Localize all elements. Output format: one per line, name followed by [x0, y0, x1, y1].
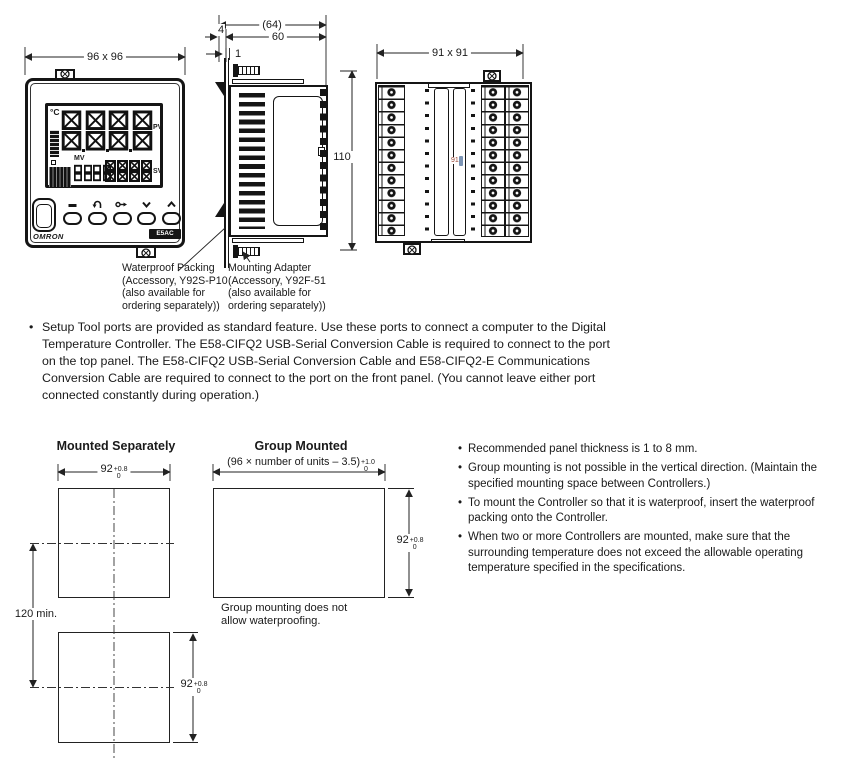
top-clamp-screw-head [233, 64, 238, 77]
top-clamp-screw [238, 66, 260, 75]
top-connector [428, 83, 470, 88]
callout-waterproof-packing: Waterproof Packing (Accessory, Y92S-P10 … [122, 262, 228, 312]
terminal-teeth [320, 89, 326, 233]
dim-rear: 91 x 91 [429, 47, 471, 59]
side-view [0, 0, 370, 290]
separate-mount-title: Mounted Separately [36, 439, 196, 453]
bottom-clamp-plate [232, 238, 304, 243]
side-door [273, 96, 323, 226]
separate-cutout-top [58, 488, 170, 598]
dim-height: 110 [330, 151, 354, 163]
bottom-clamp-screw [238, 247, 260, 256]
mounting-slot [434, 88, 449, 236]
mounting-note: Recommended panel thickness is 1 to 8 mm… [458, 442, 852, 458]
dim-packing: 1 [234, 48, 242, 60]
group-mount-formula: (96 × number of units – 3.5)+1.00 [201, 456, 401, 474]
vent-slots [239, 93, 265, 229]
mounting-notes-list: Recommended panel thickness is 1 to 8 mm… [458, 442, 852, 580]
packing-wedge [215, 82, 224, 96]
rear-annotation-tick [459, 156, 463, 166]
terminal-column-left [378, 85, 405, 236]
screw-icon [407, 245, 417, 255]
rear-view [360, 0, 560, 290]
top-clamp-plate [232, 79, 304, 84]
formula-base: (96 × number of units – 3.5) [227, 456, 360, 468]
center-dot-column [471, 89, 475, 235]
dim-bezel: 4 [217, 24, 225, 36]
center-dot-column [425, 89, 429, 235]
packing-wedge [215, 203, 224, 217]
group-mount-note: Group mounting does not allow waterproof… [221, 602, 347, 628]
callout-mounting-adapter: Mounting Adapter (Accessory, Y92F-51 (al… [228, 262, 326, 312]
terminal-column-right-outer [505, 85, 529, 237]
mounting-note: When two or more Controllers are mounted… [458, 530, 852, 577]
dim-total-depth: (64) [259, 19, 285, 31]
bottom-lip [431, 239, 465, 243]
group-cutout [213, 488, 385, 598]
dim-vertical-pitch: 120 min. [12, 608, 60, 620]
formula-tolerance: +1.00 [361, 460, 375, 473]
mounting-note: To mount the Controller so that it is wa… [458, 496, 852, 527]
dim-cutout-92-group: 92+0.80 [393, 534, 426, 552]
dim-cutout-92-top: 92+0.80 [97, 463, 130, 481]
screw-icon [487, 71, 497, 81]
side-body [229, 85, 328, 237]
setup-tool-note: Setup Tool ports are provided as standar… [29, 319, 623, 404]
datasheet-page: °C PV MV [0, 0, 854, 772]
mounting-note: Group mounting is not possible in the ve… [458, 461, 852, 492]
group-mount-title: Group Mounted [221, 439, 381, 453]
dim-front-width: 96 x 96 [84, 51, 126, 63]
dim-panel-depth: 60 [269, 31, 287, 43]
separate-cutout-bottom [58, 632, 170, 743]
terminal-column-right-inner [481, 85, 505, 237]
dim-cutout-92-bottom: 92+0.80 [177, 678, 210, 696]
bottom-clamp-screw-head [233, 245, 238, 258]
setup-tool-note-text: Setup Tool ports are provided as standar… [29, 319, 623, 404]
